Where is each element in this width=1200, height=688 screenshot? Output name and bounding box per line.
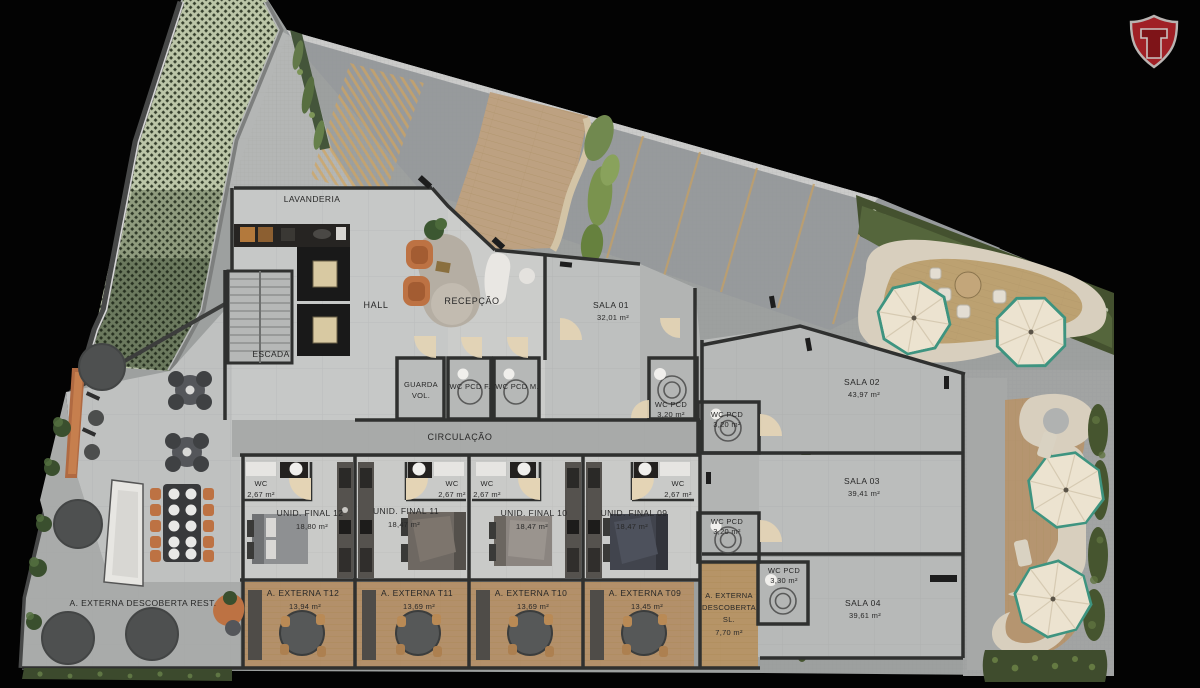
svg-text:WC PCD F.: WC PCD F. — [449, 382, 490, 391]
svg-text:A. EXTERNA DESCOBERTA REST.: A. EXTERNA DESCOBERTA REST. — [70, 598, 217, 608]
svg-text:3,20 m²: 3,20 m² — [713, 420, 741, 429]
svg-text:LAVANDERIA: LAVANDERIA — [284, 194, 341, 204]
svg-text:2,67 m²: 2,67 m² — [664, 490, 692, 499]
svg-text:GUARDA: GUARDA — [404, 380, 438, 389]
svg-text:18,47 m²: 18,47 m² — [516, 522, 548, 531]
svg-text:UNID. FINAL 09: UNID. FINAL 09 — [601, 508, 668, 518]
svg-text:HALL: HALL — [364, 300, 389, 310]
svg-text:13,69 m²: 13,69 m² — [517, 602, 549, 611]
svg-text:SALA 02: SALA 02 — [844, 377, 880, 387]
svg-text:13,94 m²: 13,94 m² — [289, 602, 321, 611]
svg-text:WC: WC — [445, 479, 458, 488]
svg-text:WC: WC — [480, 479, 493, 488]
svg-text:18,80 m²: 18,80 m² — [296, 522, 328, 531]
svg-text:2,67 m²: 2,67 m² — [247, 490, 275, 499]
svg-text:UNID. FINAL 12: UNID. FINAL 12 — [277, 508, 344, 518]
svg-text:3,20 m²: 3,20 m² — [657, 410, 685, 419]
svg-text:A. EXTERNA: A. EXTERNA — [705, 591, 753, 600]
svg-text:WC PCD M.: WC PCD M. — [495, 382, 539, 391]
svg-text:WC PCD: WC PCD — [711, 517, 743, 526]
svg-text:ESCADA: ESCADA — [252, 349, 289, 359]
svg-text:SALA 01: SALA 01 — [593, 300, 629, 310]
svg-text:VOL.: VOL. — [412, 391, 430, 400]
svg-text:RECEPÇÃO: RECEPÇÃO — [444, 296, 499, 306]
svg-text:13,69 m²: 13,69 m² — [403, 602, 435, 611]
svg-text:3,30 m²: 3,30 m² — [770, 576, 798, 585]
svg-text:18,47 m²: 18,47 m² — [388, 520, 420, 529]
svg-text:WC: WC — [671, 479, 684, 488]
svg-text:13,45 m²: 13,45 m² — [631, 602, 663, 611]
svg-text:A. EXTERNA T09: A. EXTERNA T09 — [609, 588, 682, 598]
svg-text:SALA 03: SALA 03 — [844, 476, 880, 486]
svg-text:39,41 m²: 39,41 m² — [848, 489, 880, 498]
svg-text:32,01 m²: 32,01 m² — [597, 313, 629, 322]
svg-text:18,47 m²: 18,47 m² — [616, 522, 648, 531]
svg-text:WC: WC — [254, 479, 267, 488]
svg-text:A. EXTERNA T11: A. EXTERNA T11 — [381, 588, 453, 598]
svg-text:SL.: SL. — [723, 615, 735, 624]
svg-text:DESCOBERTA: DESCOBERTA — [702, 603, 756, 612]
svg-text:39,61 m²: 39,61 m² — [849, 611, 881, 620]
svg-text:WC PCD: WC PCD — [655, 400, 687, 409]
svg-text:CIRCULAÇÃO: CIRCULAÇÃO — [427, 432, 492, 442]
svg-text:WC PCD: WC PCD — [768, 566, 800, 575]
svg-text:UNID. FINAL 11: UNID. FINAL 11 — [373, 506, 439, 516]
svg-text:SALA 04: SALA 04 — [845, 598, 881, 608]
svg-text:3,20 m²: 3,20 m² — [713, 527, 741, 536]
svg-text:A. EXTERNA T12: A. EXTERNA T12 — [267, 588, 340, 598]
svg-text:7,70 m²: 7,70 m² — [715, 628, 743, 637]
svg-text:A. EXTERNA T10: A. EXTERNA T10 — [495, 588, 568, 598]
svg-text:43,97 m²: 43,97 m² — [848, 390, 880, 399]
svg-text:2,67 m²: 2,67 m² — [438, 490, 466, 499]
svg-text:UNID. FINAL 10: UNID. FINAL 10 — [501, 508, 568, 518]
svg-text:2,67 m²: 2,67 m² — [473, 490, 501, 499]
svg-text:WC PCD: WC PCD — [711, 410, 743, 419]
